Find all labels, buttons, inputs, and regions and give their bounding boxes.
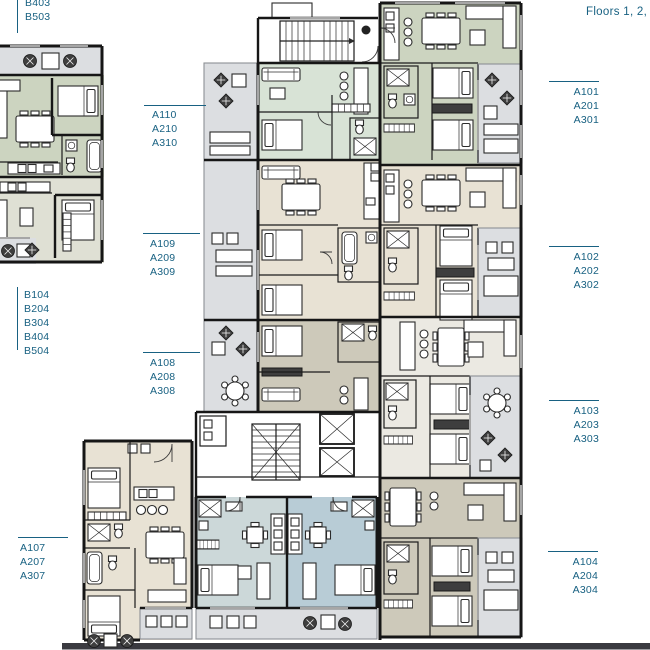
- round-chair-icon: [24, 55, 37, 68]
- bed-icon: [88, 596, 120, 636]
- washer-icon: [366, 232, 377, 243]
- wardrobe-icon: [332, 104, 370, 112]
- unit-label-a104: A104 A204 A304: [548, 555, 598, 597]
- shower-icon: [199, 500, 221, 517]
- bed-icon: [88, 468, 120, 508]
- bed-icon: [262, 326, 302, 356]
- leader-line-b104: [17, 287, 18, 350]
- bed-icon: [440, 226, 472, 266]
- a107-block-floorplan: [84, 441, 192, 640]
- terrace-a104: [478, 538, 522, 637]
- sofa-icon: [257, 563, 270, 599]
- staircase-icon: [252, 424, 300, 480]
- shower-icon: [342, 324, 364, 341]
- bed-icon: [433, 120, 473, 150]
- dining-table-icon: [433, 328, 469, 366]
- washer-icon: [66, 140, 77, 151]
- bed-icon: [433, 68, 473, 98]
- wardrobe-icon: [384, 292, 414, 300]
- bed-icon: [262, 230, 302, 260]
- leader-line-a101: [549, 81, 599, 82]
- shower-icon: [352, 500, 374, 517]
- unit-label-b403: B403 B503: [25, 0, 50, 24]
- dresser-icon: [432, 104, 472, 113]
- unit-label-a109: A109 A209 A309: [150, 237, 175, 279]
- dining-table-icon: [422, 13, 460, 49]
- bed-icon: [430, 434, 470, 464]
- bathtub-icon: [87, 140, 102, 172]
- toilet-icon: [356, 120, 364, 134]
- round-chair-icon: [2, 245, 15, 258]
- unit-label-a103: A103 A203 A303: [549, 404, 599, 446]
- bed-icon: [432, 546, 472, 576]
- wardrobe-icon: [196, 540, 219, 549]
- sofa-icon: [148, 590, 186, 602]
- bed-icon: [440, 280, 472, 320]
- toilet-icon: [109, 556, 117, 570]
- dresser-icon: [434, 420, 470, 429]
- bed-icon: [430, 384, 470, 414]
- terrace-a102: [478, 228, 522, 317]
- leader-line-a107: [18, 537, 68, 538]
- bed-icon: [198, 565, 238, 595]
- leader-line-b403: [17, 0, 18, 33]
- bathtub-icon: [342, 232, 357, 264]
- sofa-icon: [262, 166, 300, 179]
- dining-table-icon: [282, 179, 320, 215]
- unit-label-a110: A110 A210 A310: [152, 108, 177, 150]
- street-furniture: [88, 634, 134, 648]
- dining-table-icon: [16, 111, 54, 147]
- round-chair-icon: [88, 635, 101, 648]
- right-wing-floorplan: [380, 3, 522, 640]
- toilet-icon: [115, 524, 123, 538]
- sofa-icon: [262, 68, 300, 81]
- round-chair-icon: [64, 55, 77, 68]
- dresser-icon: [436, 268, 474, 277]
- bathtub-icon: [87, 552, 102, 584]
- bed-icon: [58, 86, 98, 116]
- round-chair-icon: [304, 617, 317, 630]
- middle-wing-floorplan: [196, 3, 380, 639]
- floors-title: Floors 1, 2, 3: [586, 6, 650, 18]
- unit-label-a101: A101 A201 A301: [549, 85, 599, 127]
- toilet-icon: [67, 158, 75, 172]
- elevator-icon: [320, 448, 354, 476]
- wardrobe-icon: [384, 124, 414, 132]
- shower-icon: [387, 231, 409, 248]
- bed-icon: [262, 120, 302, 150]
- b-block-floorplan: [0, 46, 104, 264]
- bed-icon: [262, 285, 302, 315]
- shower-icon: [88, 524, 110, 541]
- toilet-icon: [369, 326, 377, 340]
- sofa-icon: [262, 388, 300, 401]
- leader-line-a110: [144, 105, 206, 106]
- leader-line-a104: [548, 551, 598, 552]
- leader-line-a102: [549, 246, 599, 247]
- unit-label-a102: A102 A202 A302: [549, 250, 599, 292]
- bed-icon: [335, 565, 375, 595]
- core-area: [200, 414, 354, 480]
- kitchen-counter-icon: [354, 378, 368, 410]
- wardrobe-icon: [384, 436, 413, 444]
- washer-icon: [404, 94, 415, 105]
- unit-label-b104: B104 B204 B304 B404 B504: [24, 288, 49, 358]
- toilet-icon: [389, 570, 397, 584]
- terrace-table-icon: [42, 53, 59, 69]
- wardrobe-icon: [384, 600, 413, 608]
- toilet-icon: [389, 406, 397, 420]
- toilet-icon: [345, 266, 353, 280]
- shower-icon: [354, 138, 376, 155]
- toilet-icon: [389, 94, 397, 108]
- leader-line-a103: [549, 400, 599, 401]
- leader-line-a109: [143, 233, 200, 234]
- leader-line-a108: [143, 352, 200, 353]
- sofa-icon: [303, 563, 316, 599]
- kitchen-counter-icon: [400, 322, 415, 370]
- shower-icon: [386, 383, 408, 400]
- shower-icon: [387, 545, 409, 562]
- toilet-icon: [389, 258, 397, 272]
- unit-label-a108: A108 A208 A308: [150, 356, 175, 398]
- unit-label-a107: A107 A207 A307: [20, 541, 45, 583]
- floorplan-page: { "title": "Floors 1, 2, 3", "colors": {…: [0, 0, 650, 650]
- elevator-icon: [320, 414, 354, 444]
- wardrobe-icon: [88, 512, 126, 520]
- shower-icon: [387, 69, 409, 86]
- round-chair-icon: [121, 635, 134, 648]
- round-chair-icon: [339, 618, 352, 631]
- wc-icon: [362, 26, 371, 35]
- road-bar: [62, 643, 650, 650]
- dresser-icon: [434, 582, 470, 591]
- wardrobe-icon: [63, 213, 71, 251]
- dining-table-icon: [422, 175, 460, 211]
- bed-icon: [432, 596, 472, 626]
- terrace-a107-furniture: [146, 616, 187, 627]
- top-balcony: [272, 3, 312, 18]
- dining-table-icon: [385, 488, 421, 526]
